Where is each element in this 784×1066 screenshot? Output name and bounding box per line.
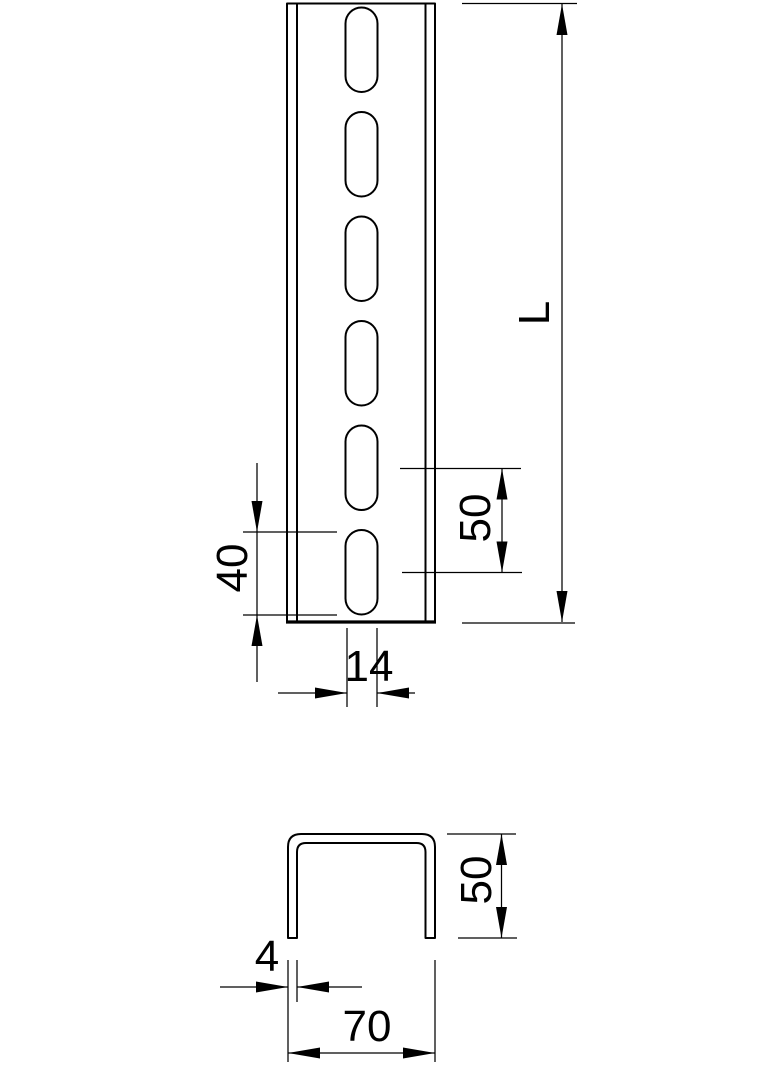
dim-arrow-down <box>497 542 508 573</box>
dim-slot-length: 40 <box>208 463 337 682</box>
u-profile-outline <box>288 834 435 938</box>
dim-profile-width: 70 <box>288 960 435 1062</box>
dim-slot-width: 14 <box>278 628 415 707</box>
dim-arrow-down <box>252 501 263 532</box>
dim-label-profile-width: 70 <box>343 1002 392 1051</box>
technical-drawing: L 50 40 14 <box>0 0 784 1066</box>
dim-arrow-down <box>557 591 568 622</box>
dim-arrow-down <box>496 907 507 938</box>
dim-arrow-up <box>557 4 568 35</box>
dim-label-slot-pitch: 50 <box>451 494 500 543</box>
dim-arrow-left <box>297 982 329 993</box>
dim-arrow-left <box>288 1048 320 1059</box>
slot-hole <box>346 426 378 511</box>
dim-slot-pitch: 50 <box>400 469 522 573</box>
dim-arrow-right <box>315 688 347 699</box>
dim-wall-thickness: 4 <box>220 932 362 1062</box>
dim-label-slot-length: 40 <box>208 544 257 593</box>
slot-hole <box>346 321 378 406</box>
section-view <box>288 834 435 938</box>
slot-hole <box>346 112 378 197</box>
dim-label-slot-width: 14 <box>345 642 394 691</box>
slot-hole <box>346 8 378 93</box>
dim-label-length: L <box>510 301 559 325</box>
dim-label-profile-height: 50 <box>452 856 501 905</box>
drawing-canvas: L 50 40 14 <box>0 0 784 1066</box>
dim-label-wall-thickness: 4 <box>255 932 279 981</box>
slot-hole <box>346 530 378 615</box>
dim-arrow-right <box>403 1048 435 1059</box>
dim-arrow-up <box>252 615 263 646</box>
front-view <box>286 4 436 623</box>
slot-hole <box>346 217 378 302</box>
dim-profile-height: 50 <box>447 834 517 938</box>
dim-arrow-right <box>256 982 288 993</box>
